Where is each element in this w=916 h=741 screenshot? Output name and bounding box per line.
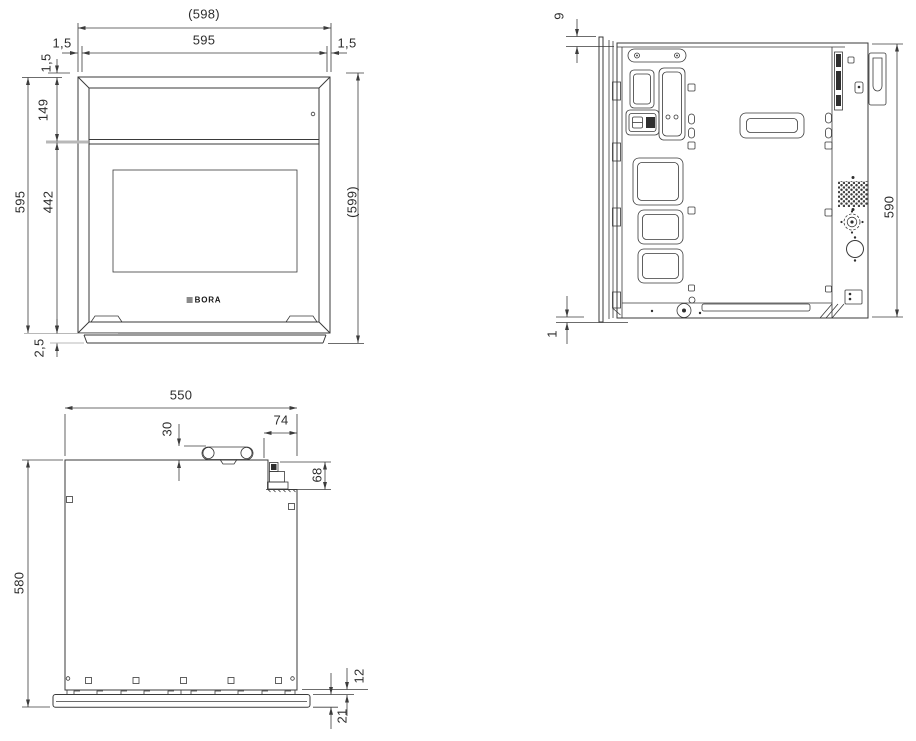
front-panel-strip: [53, 695, 310, 708]
top-fasteners: [66, 497, 294, 684]
dim-top-depth: 580: [13, 572, 26, 595]
top-slot: [628, 49, 686, 62]
fastener-columns: [688, 57, 854, 303]
base-plate: [622, 290, 862, 318]
dim-overall-height: (599): [346, 186, 359, 218]
fan-knob: [840, 210, 863, 233]
dim-gap-left: 1,5: [53, 37, 72, 50]
dim-panel-thickness: 21: [336, 708, 349, 723]
panel-indicator-dot: [311, 112, 315, 116]
mains-connection: [266, 463, 296, 493]
steam-outlet: [202, 447, 253, 464]
front-extension-lines: [24, 142, 118, 343]
dim-panel-height: 149: [37, 99, 50, 122]
top-view: [22, 408, 368, 729]
handle-recess: [740, 113, 804, 138]
mounting-hook: [855, 53, 886, 105]
front-view: [22, 23, 364, 357]
dim-side-height: 590: [883, 196, 896, 219]
dim-front-gap: 12: [353, 668, 366, 683]
front-dimension-lines: [22, 23, 364, 357]
dim-connection-height: 68: [311, 467, 324, 482]
dim-bottom-overhang: 2,5: [33, 339, 46, 358]
rear-port: [847, 236, 864, 261]
dim-door-height: 442: [42, 191, 55, 214]
brand-logo: BORA: [187, 296, 222, 305]
dim-side-bottom-offset: 1: [546, 330, 559, 338]
side-view: [556, 19, 903, 344]
control-panel: [89, 112, 319, 144]
dim-top-width: 550: [170, 389, 193, 402]
dim-front-height: 595: [14, 191, 27, 214]
brand-logo-text: BORA: [195, 296, 222, 305]
dim-gap-top: 1,5: [40, 54, 53, 73]
side-panel-stack: [630, 68, 685, 283]
top-dimension-lines: [22, 408, 368, 729]
top-body-outline: [65, 460, 297, 690]
dim-outlet-offset: 30: [161, 421, 174, 436]
dim-connection-offset: 74: [273, 414, 288, 427]
dim-front-width: 595: [193, 34, 216, 47]
terminal-block: [835, 52, 843, 110]
side-body: [617, 43, 868, 318]
dim-niche-width: (598): [188, 8, 220, 21]
brand-logo-icon: [187, 297, 193, 303]
door-window: [113, 170, 297, 272]
drawing-geometry: [0, 0, 916, 741]
dim-gap-right: 1,5: [338, 37, 357, 50]
door-latch: [626, 110, 659, 135]
vent-grille: [838, 176, 868, 211]
door-bottom-lip: [84, 316, 326, 343]
technical-drawing-canvas: (598) 595 1,5 1,5 1,5 149 595 442 2,5 (5…: [0, 0, 916, 741]
dim-side-top-offset: 9: [553, 12, 566, 20]
